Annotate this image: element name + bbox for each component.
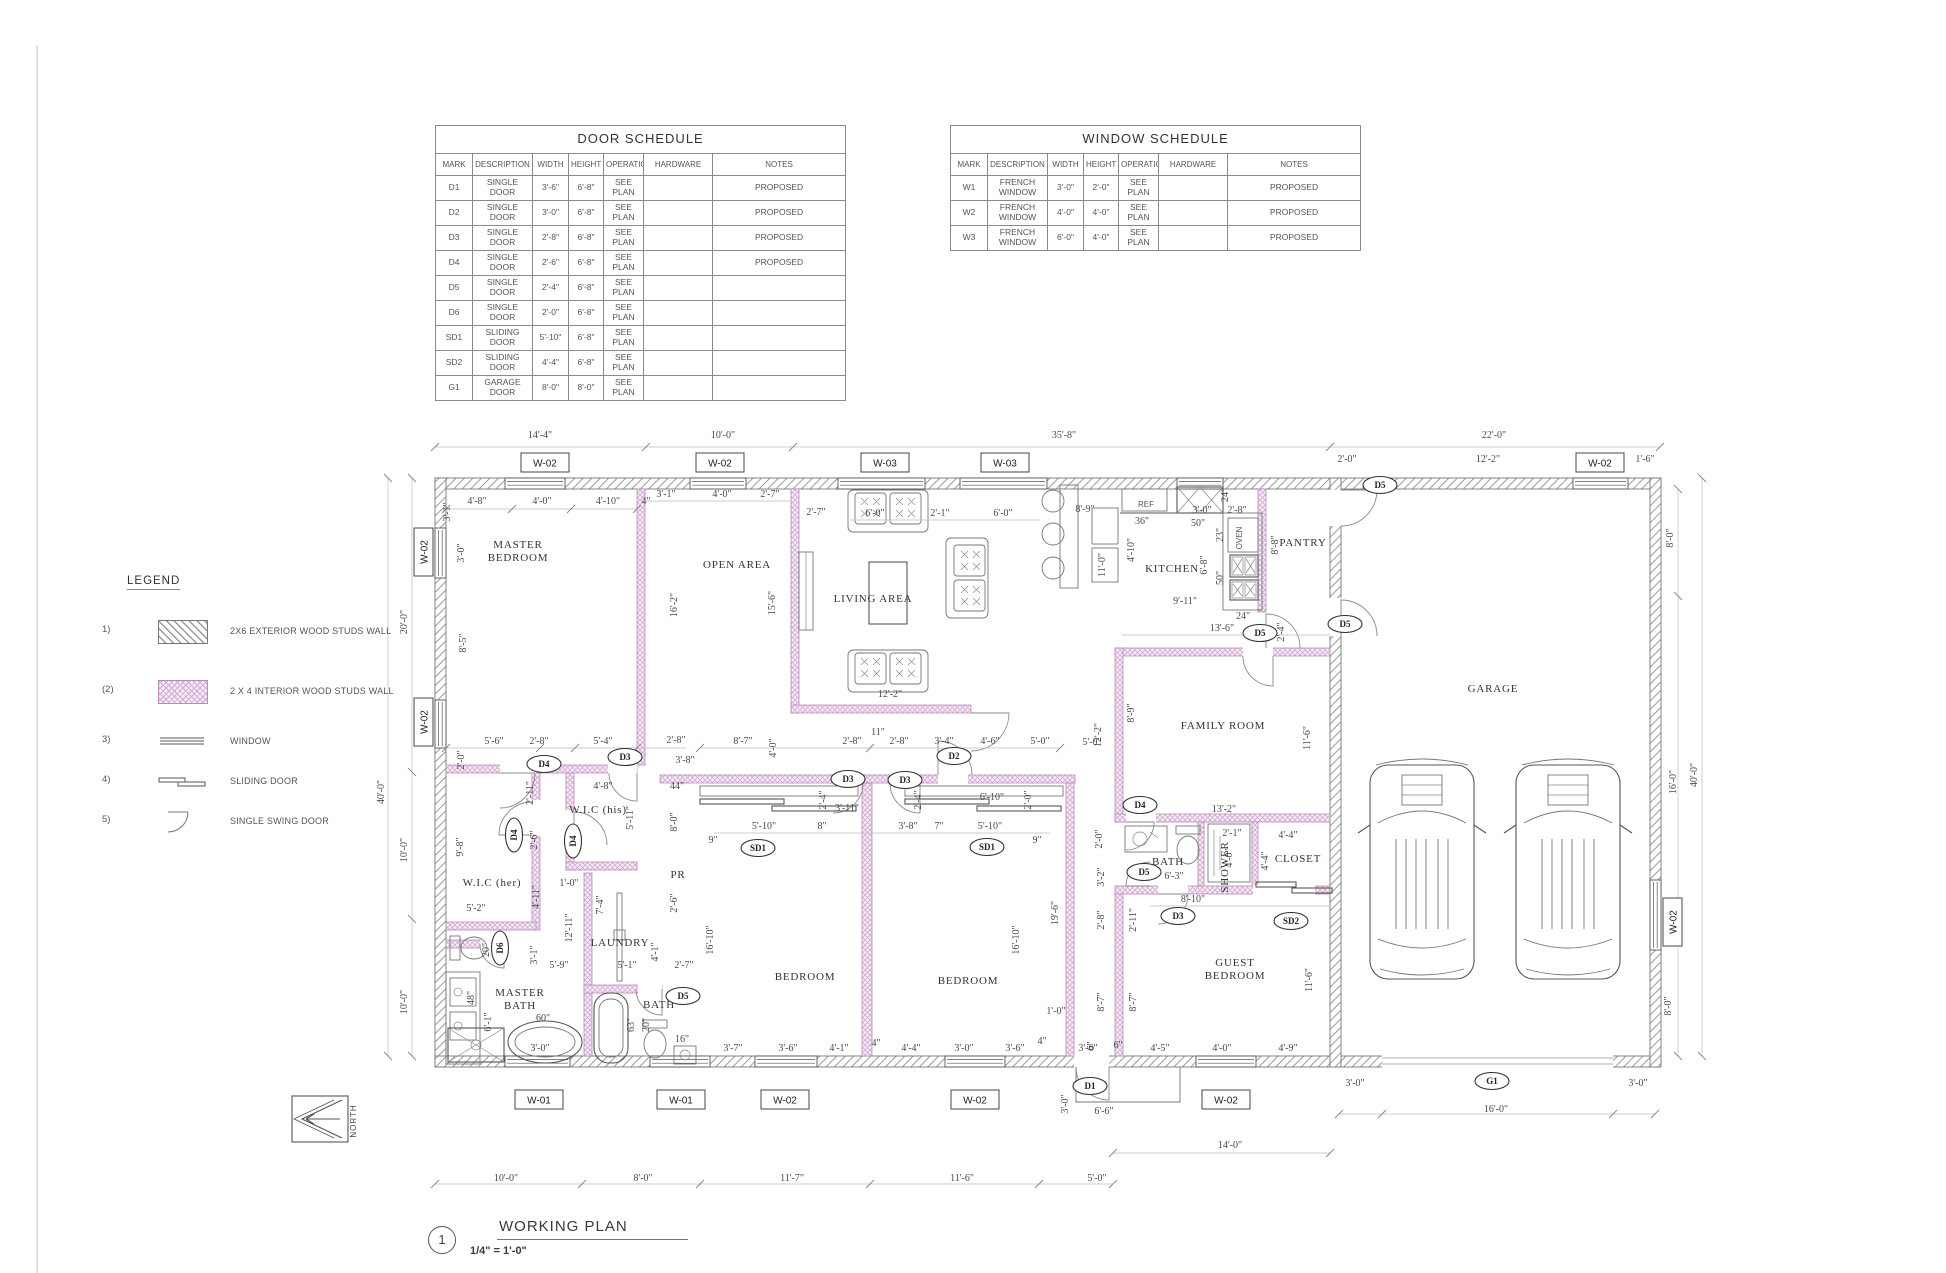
door-tag-label: D6 xyxy=(495,942,505,953)
door-tag: G1 xyxy=(1475,1073,1509,1090)
table-cell: D2 xyxy=(436,201,473,226)
window-tag-label: W-02 xyxy=(533,459,557,470)
dimension-label: 11'-0" xyxy=(1097,553,1108,577)
table-header-row: MARKDESCRIPTIONWIDTHHEIGHTOPERATIONHARDW… xyxy=(436,154,846,176)
door-tag-label: D4 xyxy=(539,759,550,769)
table-cell: 6'-8" xyxy=(569,201,604,226)
dimension-label: 4'-4" xyxy=(901,1043,920,1054)
window-symbol xyxy=(1650,880,1661,950)
table-cell: SD1 xyxy=(436,326,473,351)
dimension-label: 23" xyxy=(1215,528,1226,542)
dimension-label: 2'-1" xyxy=(1222,828,1241,839)
window-tag: W-02 xyxy=(761,1090,809,1109)
table-cell: 8'-0" xyxy=(569,376,604,401)
table-cell: 4'-4" xyxy=(533,351,569,376)
dimension-label: 2'-7" xyxy=(674,960,693,971)
table-cell: SEE PLAN xyxy=(604,351,644,376)
dimension-label: 4'-1" xyxy=(829,1043,848,1054)
table-cell xyxy=(713,276,846,301)
window-schedule-table: WINDOW SCHEDULEMARKDESCRIPTIONWIDTHHEIGH… xyxy=(950,125,1361,251)
table-cell: 3'-6" xyxy=(533,176,569,201)
dimension-label: 9" xyxy=(708,835,717,846)
table-cell: D1 xyxy=(436,176,473,201)
exterior-wall xyxy=(1650,478,1661,1067)
dimension-label: 4" xyxy=(641,496,650,507)
dimension-label: 10'-0" xyxy=(711,430,735,441)
dimension-label: 4'-11" xyxy=(531,885,542,909)
table-cell: 6'-8" xyxy=(569,301,604,326)
table-cell: GARAGE DOOR xyxy=(473,376,533,401)
dimension-label: 8'-0" xyxy=(1665,528,1676,547)
door-tag: SD1 xyxy=(741,840,775,857)
swing-door-icon xyxy=(1341,490,1377,526)
dimension-label: 4'-10" xyxy=(1126,538,1137,562)
table-cell xyxy=(1159,201,1228,226)
dimension-label: 2'-4" xyxy=(1276,622,1287,641)
door-tag-label: D2 xyxy=(949,751,960,761)
cooktop-icon xyxy=(1230,555,1258,577)
dimension-label: 5'-0" xyxy=(1082,737,1101,748)
swing-door-icon xyxy=(1243,656,1273,686)
table-cell: SINGLE DOOR xyxy=(473,226,533,251)
interior-wall xyxy=(1115,894,1123,1056)
window-symbol xyxy=(838,478,925,489)
page-title: WORKING PLAN xyxy=(497,1218,688,1240)
interior-wall xyxy=(1115,648,1123,822)
dimension-label: 2'-6" xyxy=(669,893,680,912)
bar-stool-icon xyxy=(1042,490,1064,512)
table-cell: PROPOSED xyxy=(1228,201,1361,226)
dimension-label: 4'-0" xyxy=(532,496,551,507)
dimension-label: 2'-8" xyxy=(529,736,548,747)
table-cell: 8'-0" xyxy=(533,376,569,401)
table-row: W3FRENCH WINDOW6'-0"4'-0"SEE PLANPROPOSE… xyxy=(951,226,1361,251)
table-cell: W2 xyxy=(951,201,988,226)
interior-wall xyxy=(1115,648,1330,656)
table-cell: SEE PLAN xyxy=(604,376,644,401)
table-cell xyxy=(644,176,713,201)
dimension-label: 8'-5" xyxy=(458,633,469,652)
vanity-icon xyxy=(1125,826,1167,852)
room-label: PANTRY xyxy=(1279,537,1326,549)
table-row: D4SINGLE DOOR2'-6"6'-8"SEE PLANPROPOSED xyxy=(436,251,846,276)
dimension-label: 48" xyxy=(466,991,477,1005)
dimension-label: 20'-0" xyxy=(399,610,410,634)
door-tag-label: D5 xyxy=(1255,628,1266,638)
table-cell: FRENCH WINDOW xyxy=(988,201,1048,226)
table-cell: PROPOSED xyxy=(713,201,846,226)
door-tag-label: D5 xyxy=(1375,480,1386,490)
dimension-label: 4'-6" xyxy=(980,736,999,747)
table-row: D2SINGLE DOOR3'-0"6'-8"SEE PLANPROPOSED xyxy=(436,201,846,226)
dimension-label: 2'-7" xyxy=(760,489,779,500)
table-header-row: MARKDESCRIPTIONWIDTHHEIGHTOPERATIONHARDW… xyxy=(951,154,1361,176)
dimension-label: 4'-0" xyxy=(1212,1043,1231,1054)
table-cell: SEE PLAN xyxy=(604,326,644,351)
window-symbol xyxy=(435,700,446,748)
table-cell xyxy=(644,201,713,226)
column-header: HEIGHT xyxy=(569,154,604,176)
window-tag: W-02 xyxy=(1202,1090,1250,1109)
table-cell xyxy=(644,376,713,401)
detail-number-badge: 1 xyxy=(428,1226,456,1254)
table-cell: 2'-6" xyxy=(533,251,569,276)
window-tag: W-02 xyxy=(1663,898,1682,946)
table-cell: 5'-10" xyxy=(533,326,569,351)
table-cell: 4'-0" xyxy=(1084,201,1119,226)
room-label: FAMILY ROOM xyxy=(1181,720,1265,732)
window-symbol xyxy=(755,1056,817,1067)
door-opening xyxy=(1329,490,1342,526)
column-header: MARK xyxy=(436,154,473,176)
door-tag-label: D3 xyxy=(900,775,911,785)
table-cell: SEE PLAN xyxy=(604,226,644,251)
table-cell xyxy=(1159,176,1228,201)
window-tag-label: W-02 xyxy=(420,710,431,734)
door-tag: D3 xyxy=(1161,908,1195,925)
table-row: D3SINGLE DOOR2'-8"6'-8"SEE PLANPROPOSED xyxy=(436,226,846,251)
interior-wall xyxy=(446,922,536,930)
table-cell: FRENCH WINDOW xyxy=(988,226,1048,251)
door-tag: D5 xyxy=(1127,864,1161,881)
table-cell: SEE PLAN xyxy=(1119,176,1159,201)
dimension-label: 3'-1" xyxy=(442,502,453,521)
dimension-label: 10'-0" xyxy=(399,838,410,862)
dimension-label: 8'-7" xyxy=(1096,992,1107,1011)
dimension-label: 3'-0" xyxy=(954,1043,973,1054)
room-label: GUESTBEDROOM xyxy=(1205,957,1266,982)
window-tag-label: W-01 xyxy=(527,1096,551,1107)
dimension-label: 20" xyxy=(641,1018,652,1032)
single-swing-door-icon xyxy=(158,810,206,832)
sliding-door-icon xyxy=(158,770,206,792)
table-row: SD1SLIDING DOOR5'-10"6'-8"SEE PLAN xyxy=(436,326,846,351)
table-row: D6SINGLE DOOR2'-0"6'-8"SEE PLAN xyxy=(436,301,846,326)
room-label: MASTERBEDROOM xyxy=(488,539,549,564)
door-tag: SD2 xyxy=(1274,913,1308,930)
dimension-label: 6'-8" xyxy=(1199,555,1210,574)
column-header: HEIGHT xyxy=(1084,154,1119,176)
dimension-label: 1'-6" xyxy=(1635,454,1654,465)
table-cell: SEE PLAN xyxy=(604,201,644,226)
window-symbol xyxy=(945,1056,1005,1067)
dimension-label: 7" xyxy=(934,821,943,832)
table-cell: PROPOSED xyxy=(713,251,846,276)
interior-wall-swatch xyxy=(158,680,208,704)
table-cell: 6'-8" xyxy=(569,176,604,201)
door-tag-label: D1 xyxy=(1085,1081,1096,1091)
car-icon xyxy=(1358,759,1486,979)
column-header: NOTES xyxy=(713,154,846,176)
dimension-label: 4'-0" xyxy=(768,738,779,757)
dimension-label: 3'-1" xyxy=(656,489,675,500)
column-header: DESCRIPTION xyxy=(988,154,1048,176)
dimension-label: 11'-6" xyxy=(1302,726,1313,750)
door-tag: D1 xyxy=(1073,1078,1107,1095)
door-tag-label: D3 xyxy=(843,774,854,784)
dimension-label: 4" xyxy=(1037,1036,1046,1047)
table-cell: SD2 xyxy=(436,351,473,376)
dimension-label: 24" xyxy=(1236,611,1250,622)
window-tag: W-02 xyxy=(1576,453,1624,472)
door-tag: D3 xyxy=(608,749,642,766)
dimension-label: 16'-0" xyxy=(1484,1104,1508,1115)
dimension-label: 16" xyxy=(675,1034,689,1045)
dimension-label: 12'-2" xyxy=(878,689,902,700)
table-cell: 6'-8" xyxy=(569,251,604,276)
dimension-label: 3'-0" xyxy=(1060,1094,1071,1113)
dimension-label: 3'-8" xyxy=(675,755,694,766)
table-cell: SEE PLAN xyxy=(1119,226,1159,251)
window-tag-label: W-03 xyxy=(993,459,1017,470)
table-cell: 2'-0" xyxy=(533,301,569,326)
door-tag: D6 xyxy=(492,931,509,965)
door-tag: D5 xyxy=(666,988,700,1005)
window-symbol xyxy=(505,478,565,489)
table-cell: SINGLE DOOR xyxy=(473,201,533,226)
table-cell: 6'-8" xyxy=(569,276,604,301)
dimension-label: 2'-8" xyxy=(842,736,861,747)
dimension-label: 5'-1" xyxy=(617,960,636,971)
room-label: LIVING AREA xyxy=(834,593,913,605)
kitchen-island-icon xyxy=(1092,508,1118,544)
column-header: WIDTH xyxy=(533,154,569,176)
table-cell: 4'-0" xyxy=(1084,226,1119,251)
swing-door-icon xyxy=(609,773,637,801)
column-header: OPERATION xyxy=(604,154,644,176)
window-tag-label: W-01 xyxy=(669,1096,693,1107)
dimension-label: 8'-0" xyxy=(669,812,680,831)
dimension-label: 63" xyxy=(626,1018,637,1032)
door-tag: D4 xyxy=(565,824,582,858)
dimension-label: 3'-2" xyxy=(1096,867,1107,886)
table-cell: D3 xyxy=(436,226,473,251)
dimension-label: 5'-2" xyxy=(466,903,485,914)
window-symbol xyxy=(1196,1056,1256,1067)
door-schedule-table: DOOR SCHEDULEMARKDESCRIPTIONWIDTHHEIGHTO… xyxy=(435,125,846,401)
dimension-label: 9" xyxy=(1032,835,1041,846)
door-tag-label: D4 xyxy=(1135,800,1146,810)
column-header: MARK xyxy=(951,154,988,176)
dimension-label: 5'-0" xyxy=(1087,1173,1106,1184)
dimension-label: 6'-6" xyxy=(1094,1106,1113,1117)
table-row: W2FRENCH WINDOW4'-0"4'-0"SEE PLANPROPOSE… xyxy=(951,201,1361,226)
door-tag-label: D4 xyxy=(509,829,519,840)
table-cell: SEE PLAN xyxy=(604,176,644,201)
dimension-label: 13'-2" xyxy=(1212,804,1236,815)
room-label: W.I.C (his) xyxy=(569,804,627,816)
dimension-label: 44" xyxy=(670,781,684,792)
table-cell: W1 xyxy=(951,176,988,201)
dimension-label: 5'-4" xyxy=(593,736,612,747)
door-tag-label: SD2 xyxy=(1283,916,1300,926)
window-symbol xyxy=(690,478,746,489)
interior-wall xyxy=(862,783,872,1056)
window-symbol xyxy=(435,528,446,578)
dimension-label: 1'-0" xyxy=(1046,1006,1065,1017)
table-cell xyxy=(713,301,846,326)
door-tag-label: D5 xyxy=(678,991,689,1001)
garage-cars xyxy=(1358,759,1632,979)
table-cell: PROPOSED xyxy=(713,176,846,201)
north-label: NORTH xyxy=(349,1104,358,1137)
window-tag: W-03 xyxy=(861,453,909,472)
column-header: NOTES xyxy=(1228,154,1361,176)
door-opening xyxy=(1382,1055,1613,1068)
window-tag-label: W-02 xyxy=(773,1096,797,1107)
dimension-label: 8'-7" xyxy=(733,736,752,747)
window-tag-label: W-02 xyxy=(1669,910,1680,934)
dimension-label: 11" xyxy=(871,727,885,738)
table-cell: 6'-8" xyxy=(569,351,604,376)
window-tag: W-02 xyxy=(414,698,433,746)
dimension-label: 15'-6" xyxy=(767,591,778,615)
table-cell: D5 xyxy=(436,276,473,301)
plan-annotations: 14'-4"10'-0"35'-8"22'-0"2'-0"12'-2"1'-6"… xyxy=(376,430,1700,1184)
dimension-label: 2'-6" xyxy=(529,830,540,849)
dimension-label: 16'-10" xyxy=(1011,925,1022,954)
dimension-label: 16'-2" xyxy=(669,593,680,617)
table-cell: SLIDING DOOR xyxy=(473,326,533,351)
closet-shelf-icon xyxy=(700,786,858,796)
dimension-label: 8'-0" xyxy=(633,1173,652,1184)
table-cell: PROPOSED xyxy=(713,226,846,251)
dimension-label: 4'-8" xyxy=(467,496,486,507)
dimension-label: 50" xyxy=(1215,571,1226,585)
window-tag-label: W-02 xyxy=(1588,459,1612,470)
dimension-label: 2'-11" xyxy=(1128,908,1139,932)
window-tag-label: W-02 xyxy=(708,459,732,470)
fixture-label: OVEN xyxy=(1235,526,1244,549)
table-cell: SINGLE DOOR xyxy=(473,176,533,201)
bar-stool-icon xyxy=(1042,523,1064,545)
dimension-label: 4'-1" xyxy=(650,942,661,961)
dimension-label: 4'-0" xyxy=(712,489,731,500)
table-cell: 4'-0" xyxy=(1048,201,1084,226)
dimension-label: 4'-8" xyxy=(593,781,612,792)
door-tag-label: G1 xyxy=(1486,1076,1498,1086)
bar-stool-icon xyxy=(1042,557,1064,579)
table-cell: SEE PLAN xyxy=(604,301,644,326)
dimension-label: 14'-0" xyxy=(1218,1140,1242,1151)
dimension-label: 4'-9" xyxy=(1278,1043,1297,1054)
window-tag: W-02 xyxy=(951,1090,999,1109)
dimension-label: 8'-10" xyxy=(1181,894,1205,905)
window-tag-label: W-02 xyxy=(420,540,431,564)
door-tag-label: D3 xyxy=(620,752,631,762)
dimension-label: 7'-4" xyxy=(595,895,606,914)
dimension-label: 2'-1" xyxy=(930,508,949,519)
dimension-label: 8'-9" xyxy=(1126,703,1137,722)
schedule-title-row: DOOR SCHEDULE xyxy=(436,126,846,154)
dimension-label: 1'-0" xyxy=(559,878,578,889)
room-label: BEDROOM xyxy=(938,975,999,987)
room-label: W.I.C (her) xyxy=(463,877,522,889)
table-cell xyxy=(644,276,713,301)
window-tag: W-02 xyxy=(696,453,744,472)
drawing-scale: 1/4" = 1'-0" xyxy=(470,1245,527,1257)
interior-wall xyxy=(1066,783,1074,1056)
dimension-label: 24" xyxy=(1220,488,1231,502)
schedule-title-row: WINDOW SCHEDULE xyxy=(951,126,1361,154)
table-cell xyxy=(644,226,713,251)
door-tag: D5 xyxy=(1363,477,1397,494)
window-tag: W-02 xyxy=(414,528,433,576)
dimension-label: 3'-0" xyxy=(1628,1078,1647,1089)
table-cell: SINGLE DOOR xyxy=(473,301,533,326)
table-cell: 2'-0" xyxy=(1084,176,1119,201)
dimension-label: 4" xyxy=(871,1038,880,1049)
dimension-label: 2'-11" xyxy=(525,781,536,805)
table-cell: SINGLE DOOR xyxy=(473,276,533,301)
interior-wall xyxy=(584,873,592,1056)
window-symbol xyxy=(1573,478,1628,489)
table-row: G1GARAGE DOOR8'-0"8'-0"SEE PLAN xyxy=(436,376,846,401)
dimension-label: 3'-0" xyxy=(456,543,467,562)
dimension-label: 11'-6" xyxy=(1304,968,1315,992)
sofa-icon xyxy=(848,650,928,692)
table-cell xyxy=(713,376,846,401)
table-cell xyxy=(713,326,846,351)
room-label: OPEN AREA xyxy=(703,559,771,571)
cooktop-icon xyxy=(1230,580,1258,600)
dimension-label: 2'-4" xyxy=(913,790,924,809)
dimension-label: 3'-7" xyxy=(723,1043,742,1054)
dimension-label: 3'-0" xyxy=(530,1043,549,1054)
dimension-label: 6'-1" xyxy=(483,1012,494,1031)
dimension-label: 4'-10" xyxy=(596,496,620,507)
table-cell: PROPOSED xyxy=(1228,226,1361,251)
dimension-label: 2'-0" xyxy=(456,750,467,769)
exterior-wall xyxy=(1330,478,1341,1067)
table-cell: 2'-8" xyxy=(533,226,569,251)
door-tag: SD1 xyxy=(970,839,1004,856)
room-label: LAUNDRY xyxy=(591,937,650,949)
window-tag-label: W-03 xyxy=(873,459,897,470)
dimension-label: 12'-11" xyxy=(564,914,575,943)
dimension-label: 5'-9" xyxy=(549,960,568,971)
dimension-label: 10'-0" xyxy=(399,990,410,1014)
table-cell xyxy=(644,251,713,276)
sofa-icon xyxy=(848,490,928,532)
dimension-label: 8'-0" xyxy=(1663,996,1674,1015)
table-cell: SEE PLAN xyxy=(604,251,644,276)
door-opening xyxy=(938,774,968,784)
dimension-label: 9'-8" xyxy=(455,837,466,856)
title-block: 1 WORKING PLAN 1/4" = 1'-0" xyxy=(425,1218,745,1268)
column-header: DESCRIPTION xyxy=(473,154,533,176)
window-tag-label: W-02 xyxy=(963,1096,987,1107)
interior-wall xyxy=(566,862,637,870)
sofa-icon xyxy=(946,538,988,618)
door-opening xyxy=(1074,1055,1109,1068)
window-tag-label: W-02 xyxy=(1214,1096,1238,1107)
dimension-label: 2'-7" xyxy=(806,507,825,518)
dimension-label: 35'-8" xyxy=(1052,430,1076,441)
dimension-label: 2'-0" xyxy=(1094,829,1105,848)
dimension-label: 3'-11" xyxy=(835,803,859,814)
table-cell: G1 xyxy=(436,376,473,401)
table-cell: W3 xyxy=(951,226,988,251)
dimension-label: 14'-4" xyxy=(528,430,552,441)
dimension-label: 5'-10" xyxy=(978,821,1002,832)
window-symbol-icon xyxy=(158,730,206,752)
dimension-label: 8'-7" xyxy=(1128,992,1139,1011)
room-label: BEDROOM xyxy=(775,971,836,983)
column-header: WIDTH xyxy=(1048,154,1084,176)
column-header: OPERATION xyxy=(1119,154,1159,176)
interior-wall xyxy=(791,705,971,713)
